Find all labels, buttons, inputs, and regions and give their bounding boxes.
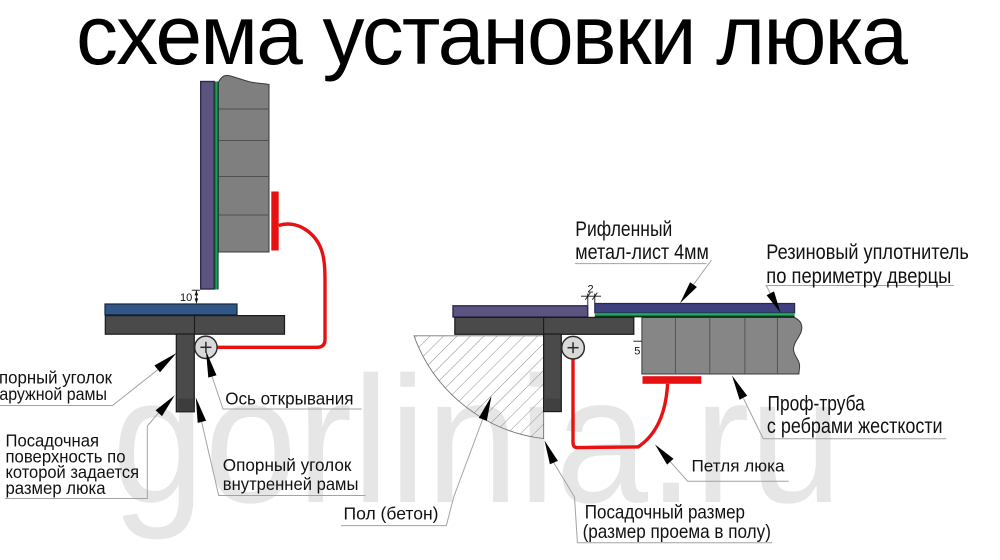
svg-text:внутренней рамы: внутренней рамы	[223, 474, 359, 494]
svg-text:метал-лист 4мм: метал-лист 4мм	[575, 241, 709, 264]
svg-text:2: 2	[588, 283, 594, 295]
svg-text:Резиновый уплотнитель: Резиновый уплотнитель	[766, 241, 969, 264]
svg-text:с ребрами жесткости: с ребрами жесткости	[767, 415, 943, 438]
svg-text:10: 10	[180, 292, 192, 304]
svg-text:по периметру дверцы: по периметру дверцы	[766, 265, 951, 288]
svg-text:Пол (бетон): Пол (бетон)	[344, 504, 439, 524]
svg-text:схема установки люка: схема установки люка	[76, 0, 908, 82]
svg-text:размер люка: размер люка	[6, 478, 106, 498]
svg-text:5: 5	[634, 345, 640, 357]
svg-text:(размер проема в полу): (размер проема в полу)	[583, 521, 771, 543]
svg-text:Петля люка: Петля люка	[692, 457, 786, 476]
svg-text:Проф-труба: Проф-труба	[768, 393, 866, 416]
svg-text:Ось открывания: Ось открывания	[225, 389, 353, 409]
svg-text:Рифленный: Рифленный	[575, 218, 672, 241]
svg-text:Опорный уголок: Опорный уголок	[223, 455, 352, 475]
svg-text:наружной рамы: наружной рамы	[0, 384, 107, 404]
